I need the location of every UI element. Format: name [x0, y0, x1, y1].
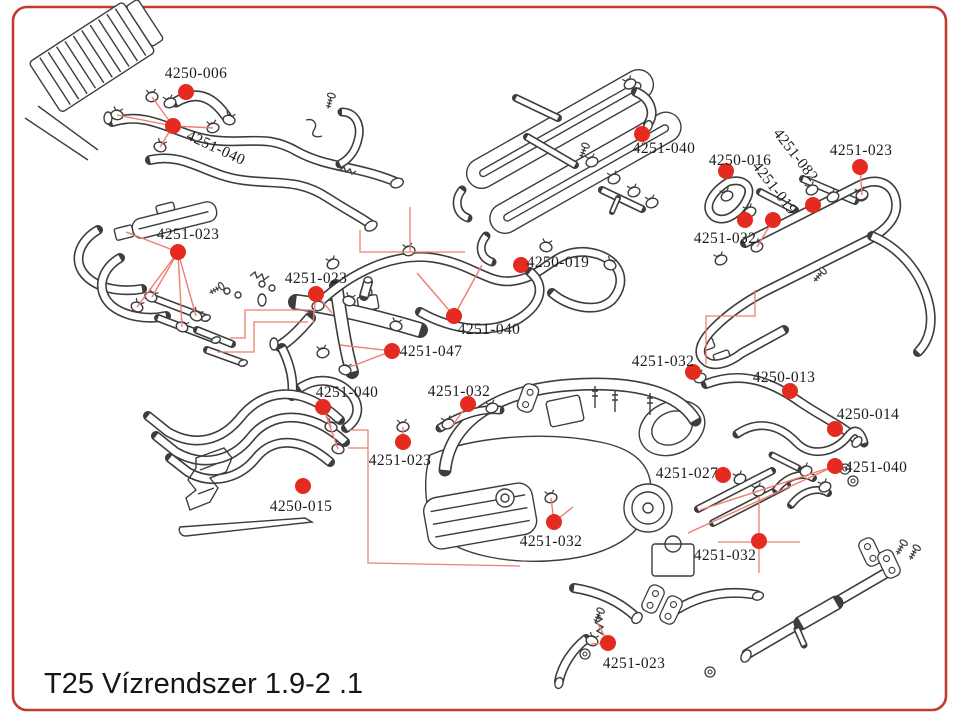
part-label[interactable]: 4250-019: [527, 254, 590, 271]
part-label[interactable]: 4251-023: [369, 452, 432, 469]
hose-clamp-icon: [315, 344, 330, 359]
part-label[interactable]: 4251-082: [770, 125, 822, 185]
part-label[interactable]: 4251-023: [830, 142, 893, 159]
hose-clamp-icon: [644, 194, 660, 210]
bracket-clip: [306, 120, 322, 137]
part-label[interactable]: 4251-023: [285, 270, 348, 287]
part-label[interactable]: 4250-013: [753, 369, 816, 386]
washer-icon: [580, 649, 590, 659]
part-dot[interactable]: [852, 159, 868, 175]
grommet-icon: [848, 476, 858, 486]
water-pump: [496, 489, 514, 507]
part-label[interactable]: 4251-032: [428, 383, 491, 400]
valve-stub-inner: [364, 282, 368, 296]
diagram-page: 4250-0064251-0404251-0234251-0234250-019…: [0, 0, 960, 720]
part-dot[interactable]: [805, 197, 821, 213]
pry-tool: [179, 518, 312, 536]
hose-clamp-icon: [585, 632, 601, 648]
part-dot[interactable]: [384, 343, 400, 359]
hose-clamp-icon: [626, 183, 642, 199]
part-label[interactable]: 4251-040: [845, 459, 908, 476]
part-dot[interactable]: [295, 478, 311, 494]
part-dot[interactable]: [827, 421, 843, 437]
hose-clamp-icon: [324, 254, 340, 270]
part-label[interactable]: 4251-040: [316, 384, 379, 401]
hose-clamp-icon: [110, 106, 124, 120]
pulley: [624, 484, 672, 532]
screw-icon: [894, 539, 909, 557]
part-dot[interactable]: [315, 399, 331, 415]
part-label[interactable]: 4251-027: [656, 465, 719, 482]
diagram-border: [13, 7, 946, 710]
radiator-lines: [25, 106, 98, 160]
engine-bracket: [546, 395, 585, 428]
hose-clamp-icon: [205, 119, 220, 134]
header-stub-1-inner: [516, 98, 558, 118]
flange-plate-icon: [516, 382, 541, 414]
part-dot[interactable]: [827, 458, 843, 474]
part-label[interactable]: 4251-040: [458, 321, 521, 338]
part-label[interactable]: 4251-040: [633, 140, 696, 157]
part-dot[interactable]: [600, 635, 616, 651]
hoses: [79, 92, 931, 681]
elbow-hose-inner: [340, 112, 359, 164]
part-label[interactable]: 4251-023: [157, 226, 220, 243]
screw-icon: [907, 544, 922, 562]
part-dot[interactable]: [165, 118, 181, 134]
part-label[interactable]: 4251-032: [694, 547, 757, 564]
hose-clamp-icon: [539, 238, 553, 252]
screw-icon: [208, 282, 226, 297]
part-label[interactable]: 4250-014: [837, 406, 900, 423]
part-label[interactable]: 4251-023: [603, 655, 666, 672]
page-title: T25 Vízrendszer 1.9-2 .1: [44, 668, 363, 701]
part-label[interactable]: 4251-032: [520, 533, 583, 550]
part-label[interactable]: 4251-019: [749, 158, 801, 218]
spring-icon: [250, 272, 269, 280]
part-dot[interactable]: [308, 286, 324, 302]
part-label[interactable]: 4250-006: [165, 65, 228, 82]
small-cyl-inner: [772, 455, 798, 468]
grommet-icon: [705, 667, 715, 677]
part-dot[interactable]: [546, 514, 562, 530]
mount-bracket: [652, 544, 694, 576]
part-dot[interactable]: [737, 212, 753, 228]
part-dot[interactable]: [395, 434, 411, 450]
parts-diagram-canvas: 4250-0064251-0404251-0234251-0234250-019…: [0, 0, 960, 720]
valve-lower-hose2-inner: [282, 348, 293, 396]
part-label[interactable]: 4251-032: [694, 230, 757, 247]
hose-clamp-icon: [145, 88, 159, 102]
screw-icon: [324, 92, 336, 109]
part-dot[interactable]: [178, 84, 194, 100]
part-label[interactable]: 4251-032: [632, 353, 695, 370]
part-label[interactable]: 4251-047: [400, 343, 463, 360]
part-label[interactable]: 4250-015: [270, 498, 333, 515]
part-dot[interactable]: [170, 244, 186, 260]
part-dot[interactable]: [765, 212, 781, 228]
hose-clamp-icon: [712, 250, 728, 266]
